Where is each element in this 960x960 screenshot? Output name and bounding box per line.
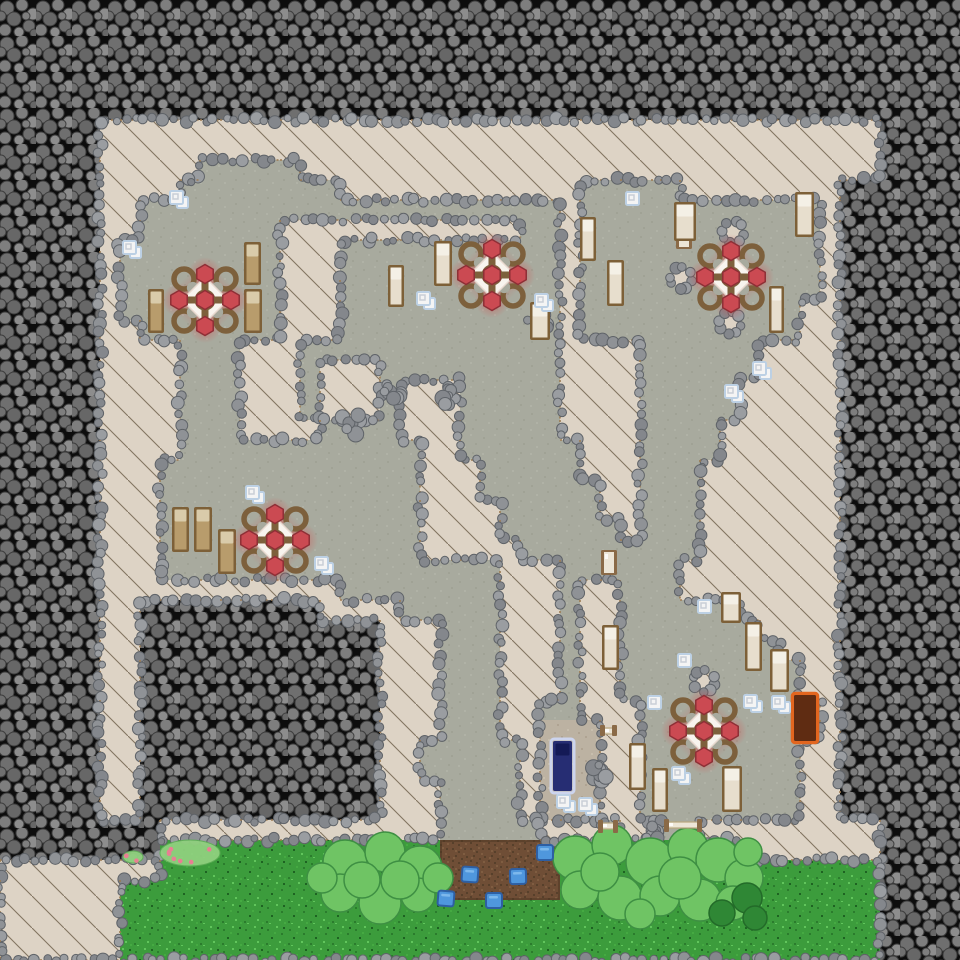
item-pile[interactable] — [698, 600, 711, 613]
bed[interactable] — [580, 217, 596, 261]
bed[interactable] — [652, 768, 668, 812]
bed[interactable] — [769, 286, 784, 333]
bed[interactable] — [172, 507, 189, 552]
crop-plot[interactable] — [510, 869, 526, 884]
bed[interactable] — [148, 289, 164, 333]
bed-orange[interactable] — [793, 694, 818, 743]
bed[interactable] — [721, 592, 741, 623]
crop-plot[interactable] — [486, 893, 502, 908]
bed[interactable] — [607, 260, 624, 306]
game-map-viewport — [0, 0, 960, 960]
bed[interactable] — [795, 192, 814, 237]
bed[interactable] — [434, 241, 452, 286]
bed[interactable] — [629, 743, 646, 790]
item-pile[interactable] — [626, 192, 639, 205]
bed[interactable] — [722, 766, 742, 812]
bed[interactable] — [244, 242, 261, 285]
bed[interactable] — [770, 649, 789, 692]
bed[interactable] — [602, 625, 619, 670]
bed-blue[interactable] — [551, 739, 574, 793]
bed[interactable] — [388, 265, 404, 307]
flower-patch — [160, 840, 220, 866]
crop-plot[interactable] — [437, 890, 454, 906]
door[interactable] — [601, 550, 617, 575]
crop-plot[interactable] — [461, 866, 478, 882]
bed[interactable] — [194, 507, 212, 552]
bed[interactable] — [745, 622, 762, 671]
bed[interactable] — [674, 202, 696, 241]
item-pile[interactable] — [648, 696, 661, 709]
flower-patch — [123, 851, 143, 863]
item-pile[interactable] — [678, 654, 691, 667]
crop-plot[interactable] — [537, 845, 553, 860]
dungeon-map-canvas[interactable] — [0, 0, 960, 960]
